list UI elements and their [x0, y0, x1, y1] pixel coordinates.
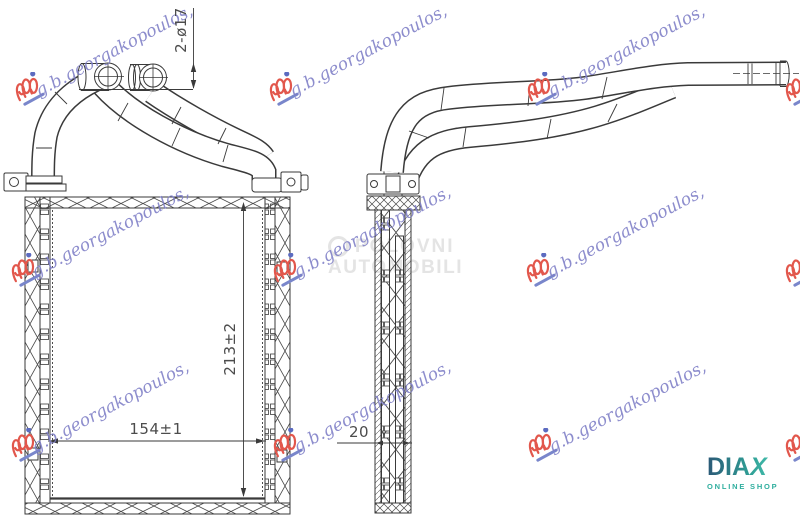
- dim-label-ports: 2-ø17: [172, 7, 190, 53]
- dim-label-depth: 20: [349, 423, 369, 441]
- diax-name-accent: X: [750, 453, 767, 481]
- diax-logo-tagline: ONLINE SHOP: [707, 483, 778, 491]
- diax-name-primary: DIA: [707, 453, 750, 481]
- front-hoses: [36, 80, 264, 190]
- technical-drawing-svg: [0, 0, 800, 516]
- diax-logo: DIAX ONLINE SHOP: [707, 455, 778, 491]
- side-clamp-bracket: [367, 174, 419, 194]
- dim-label-width: 154±1: [129, 420, 182, 438]
- dim-label-height: 213±2: [221, 322, 239, 375]
- side-core-body: [367, 196, 420, 513]
- inlet-outlet-ports: [78, 63, 193, 92]
- side-hoses: [392, 61, 799, 190]
- side-view: [337, 61, 799, 513]
- front-view: [4, 8, 308, 514]
- front-core-body: [25, 197, 290, 514]
- heater-core-product-drawing: POLOVNI AUTOMOBILI: [0, 0, 800, 516]
- diax-logo-name: DIAX: [707, 455, 778, 480]
